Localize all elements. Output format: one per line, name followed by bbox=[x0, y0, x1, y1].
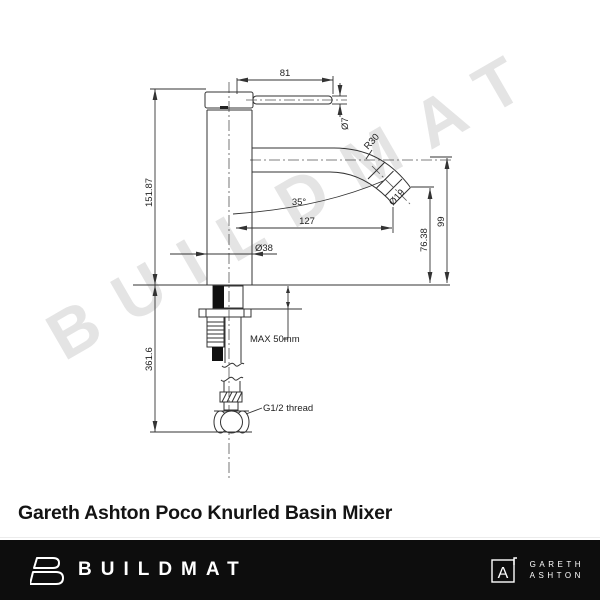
footer-separator bbox=[0, 537, 600, 538]
dim-spout-reach: 127 bbox=[299, 216, 315, 227]
spout-inner-edge bbox=[252, 172, 394, 205]
mounting-flange bbox=[199, 309, 251, 317]
dim-outlet-height: 76.38 bbox=[419, 228, 430, 252]
technical-drawing: 81 Ø7 R30 35° 127 Ø38 Ø19 99 76.38 151.8… bbox=[0, 0, 600, 500]
hex-nut-front-face bbox=[221, 411, 243, 433]
buildmat-logo: BUILDMAT bbox=[30, 555, 248, 585]
footer-bar: BUILDMAT A GARETH ASHTON bbox=[0, 540, 600, 600]
dimension-lines bbox=[150, 76, 452, 432]
spout-outer-edge bbox=[252, 148, 411, 188]
break-line-2 bbox=[221, 377, 243, 381]
dim-body-diameter: Ø38 bbox=[255, 243, 273, 254]
stud-threads bbox=[207, 322, 224, 342]
dim-spout-radius: R30 bbox=[362, 132, 382, 152]
brand-line2: ASHTON bbox=[530, 570, 584, 581]
buildmat-logo-icon bbox=[30, 555, 66, 585]
cap-joint bbox=[220, 106, 228, 109]
dim-spout-angle: 35° bbox=[292, 197, 307, 208]
shank-seal bbox=[213, 286, 224, 308]
brand-line1: GARETH bbox=[530, 559, 584, 570]
dim-inlet-thread: G1/2 thread bbox=[263, 403, 313, 414]
buildmat-wordmark: BUILDMAT bbox=[78, 559, 248, 581]
dim-spout-centre-height: 99 bbox=[436, 216, 447, 227]
product-title: Gareth Ashton Poco Knurled Basin Mixer bbox=[18, 502, 392, 525]
crimp-hatch bbox=[222, 392, 242, 402]
ga-monogram-letter: A bbox=[497, 565, 508, 582]
dim-height-above-bench: 151.87 bbox=[144, 178, 155, 207]
break-line-1 bbox=[222, 363, 244, 367]
gareth-ashton-logo: A GARETH ASHTON bbox=[490, 556, 584, 584]
dim-under-bench-length: 361.6 bbox=[144, 347, 155, 371]
hose-collar bbox=[224, 402, 238, 410]
gareth-ashton-brand-name: GARETH ASHTON bbox=[530, 559, 584, 581]
gareth-ashton-monogram-icon: A bbox=[490, 556, 520, 584]
dim-max-bench-thickness: MAX 50mm bbox=[250, 334, 300, 345]
centerlines bbox=[229, 82, 451, 478]
faucet-outline bbox=[205, 92, 411, 285]
stud-seal bbox=[212, 347, 223, 361]
dim-lever-diameter: Ø7 bbox=[340, 117, 351, 130]
dim-lever-length: 81 bbox=[280, 68, 291, 79]
